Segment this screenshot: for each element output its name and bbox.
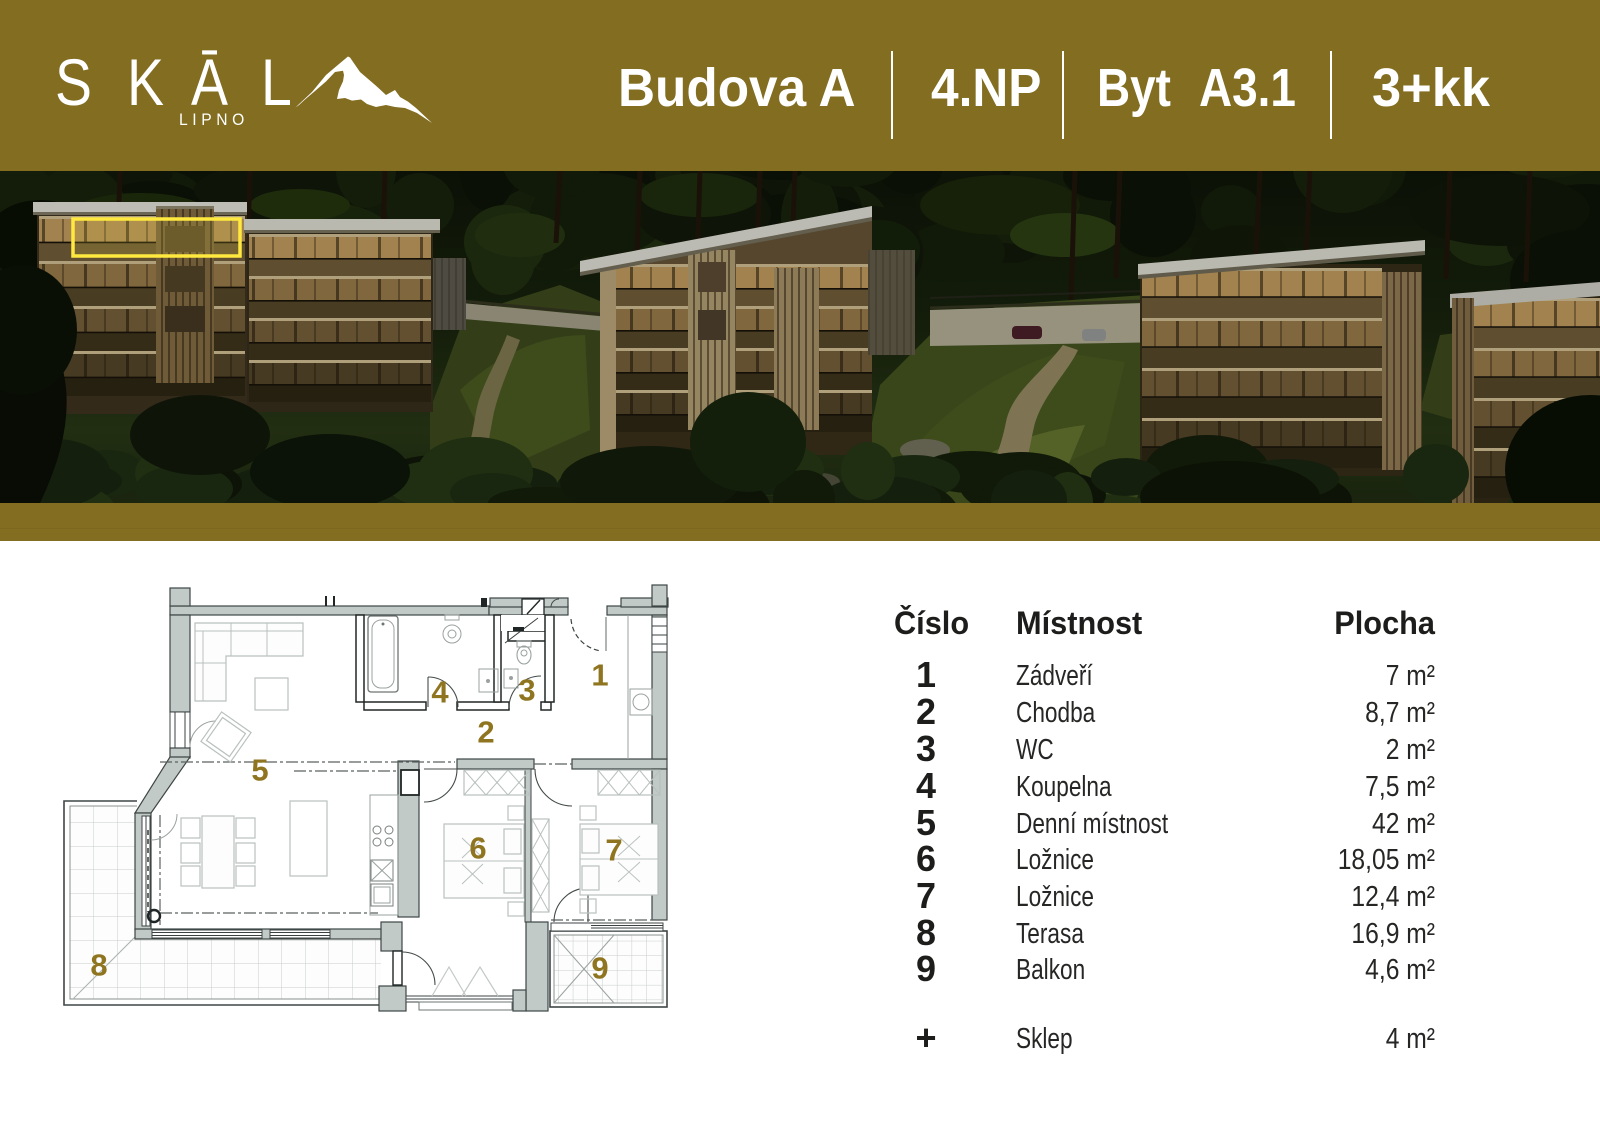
svg-text:5: 5 <box>251 753 268 788</box>
svg-text:4: 4 <box>431 675 449 710</box>
svg-text:7: 7 <box>605 833 622 868</box>
svg-text:6: 6 <box>469 831 486 866</box>
svg-text:3: 3 <box>518 673 535 708</box>
svg-text:2: 2 <box>477 715 494 750</box>
svg-text:8: 8 <box>90 948 107 983</box>
svg-text:1: 1 <box>591 658 608 693</box>
svg-text:9: 9 <box>591 951 608 986</box>
